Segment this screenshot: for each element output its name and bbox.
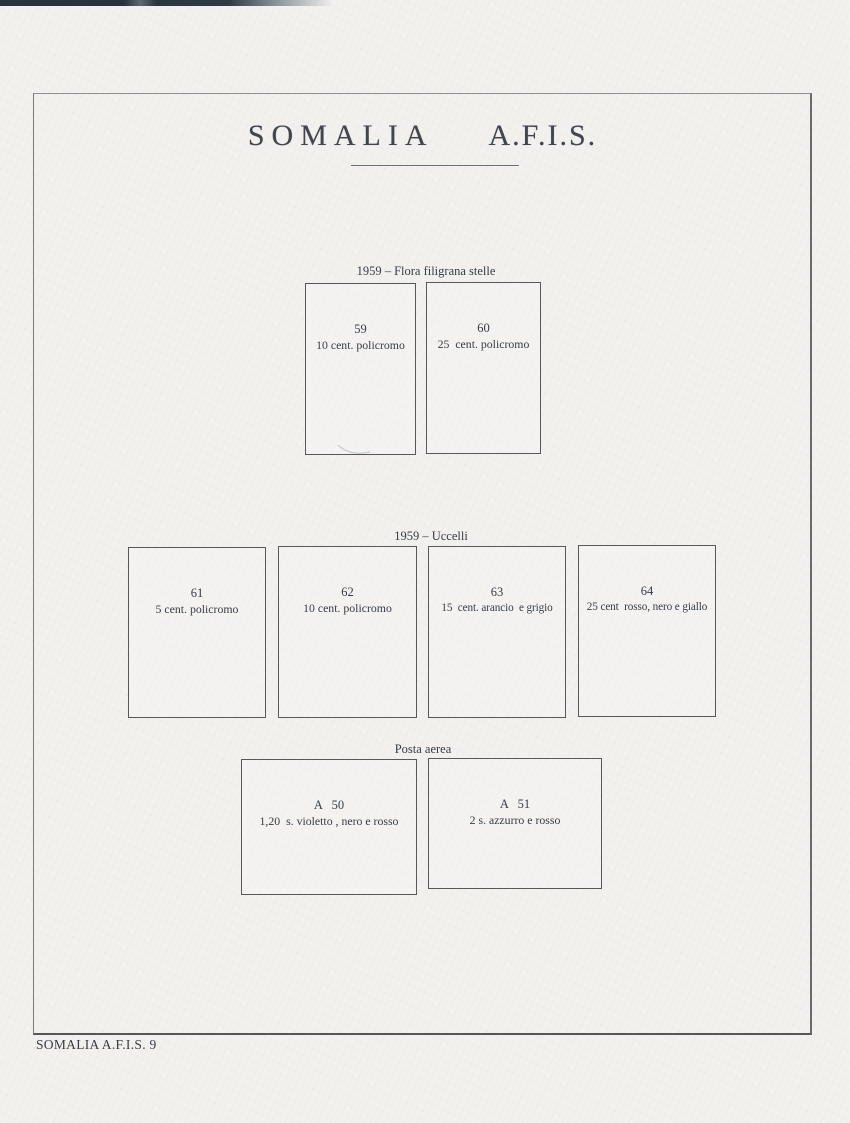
page-title: SOMALIA A.F.I.S.	[33, 119, 812, 153]
stamp-number: 61	[191, 585, 204, 601]
album-page: SOMALIA A.F.I.S. 1959 – Flora filigrana …	[0, 0, 850, 1123]
stamp-caption: 25 cent. policromo	[438, 336, 530, 352]
stamp-frame-63: 63 15 cent. arancio e grigio	[428, 546, 566, 718]
stamp-caption: 10 cent. policromo	[316, 337, 405, 353]
stamp-frame-a51: A 51 2 s. azzurro e rosso	[428, 758, 602, 889]
stamp-frame-60: 60 25 cent. policromo	[426, 282, 541, 454]
section-header-flora: 1959 – Flora filigrana stelle	[306, 264, 546, 278]
stamp-caption: 5 cent. policromo	[156, 601, 239, 617]
stamp-number: A 51	[500, 796, 530, 812]
title-afis: A.F.I.S.	[489, 119, 598, 153]
stamp-caption: 1,20 s. violetto , nero e rosso	[260, 813, 399, 829]
stamp-frame-62: 62 10 cent. policromo	[278, 546, 417, 718]
stamp-number: 60	[477, 320, 490, 336]
pencil-mark	[336, 443, 372, 457]
stamp-caption: 25 cent rosso, nero e giallo	[587, 599, 707, 615]
stamp-number: A 50	[314, 797, 344, 813]
stamp-number: 59	[354, 321, 367, 337]
stamp-frame-64: 64 25 cent rosso, nero e giallo	[578, 545, 716, 717]
stamp-number: 62	[341, 584, 354, 600]
stamp-caption: 15 cent. arancio e grigio	[441, 600, 552, 616]
stamp-number: 63	[491, 584, 504, 600]
stamp-frame-61: 61 5 cent. policromo	[128, 547, 266, 718]
title-underline	[351, 165, 519, 166]
stamp-caption: 10 cent. policromo	[303, 600, 392, 616]
stamp-frame-59: 59 10 cent. policromo	[305, 283, 416, 455]
stamp-frame-a50: A 50 1,20 s. violetto , nero e rosso	[241, 759, 417, 895]
section-header-posta-aerea: Posta aerea	[303, 742, 543, 756]
scan-edge-artifact	[0, 0, 520, 6]
stamp-caption: 2 s. azzurro e rosso	[470, 812, 561, 828]
page-footer-label: SOMALIA A.F.I.S. 9	[36, 1037, 157, 1053]
section-header-uccelli: 1959 – Uccelli	[311, 529, 551, 543]
stamp-number: 64	[641, 583, 654, 599]
title-somalia: SOMALIA	[248, 119, 434, 153]
